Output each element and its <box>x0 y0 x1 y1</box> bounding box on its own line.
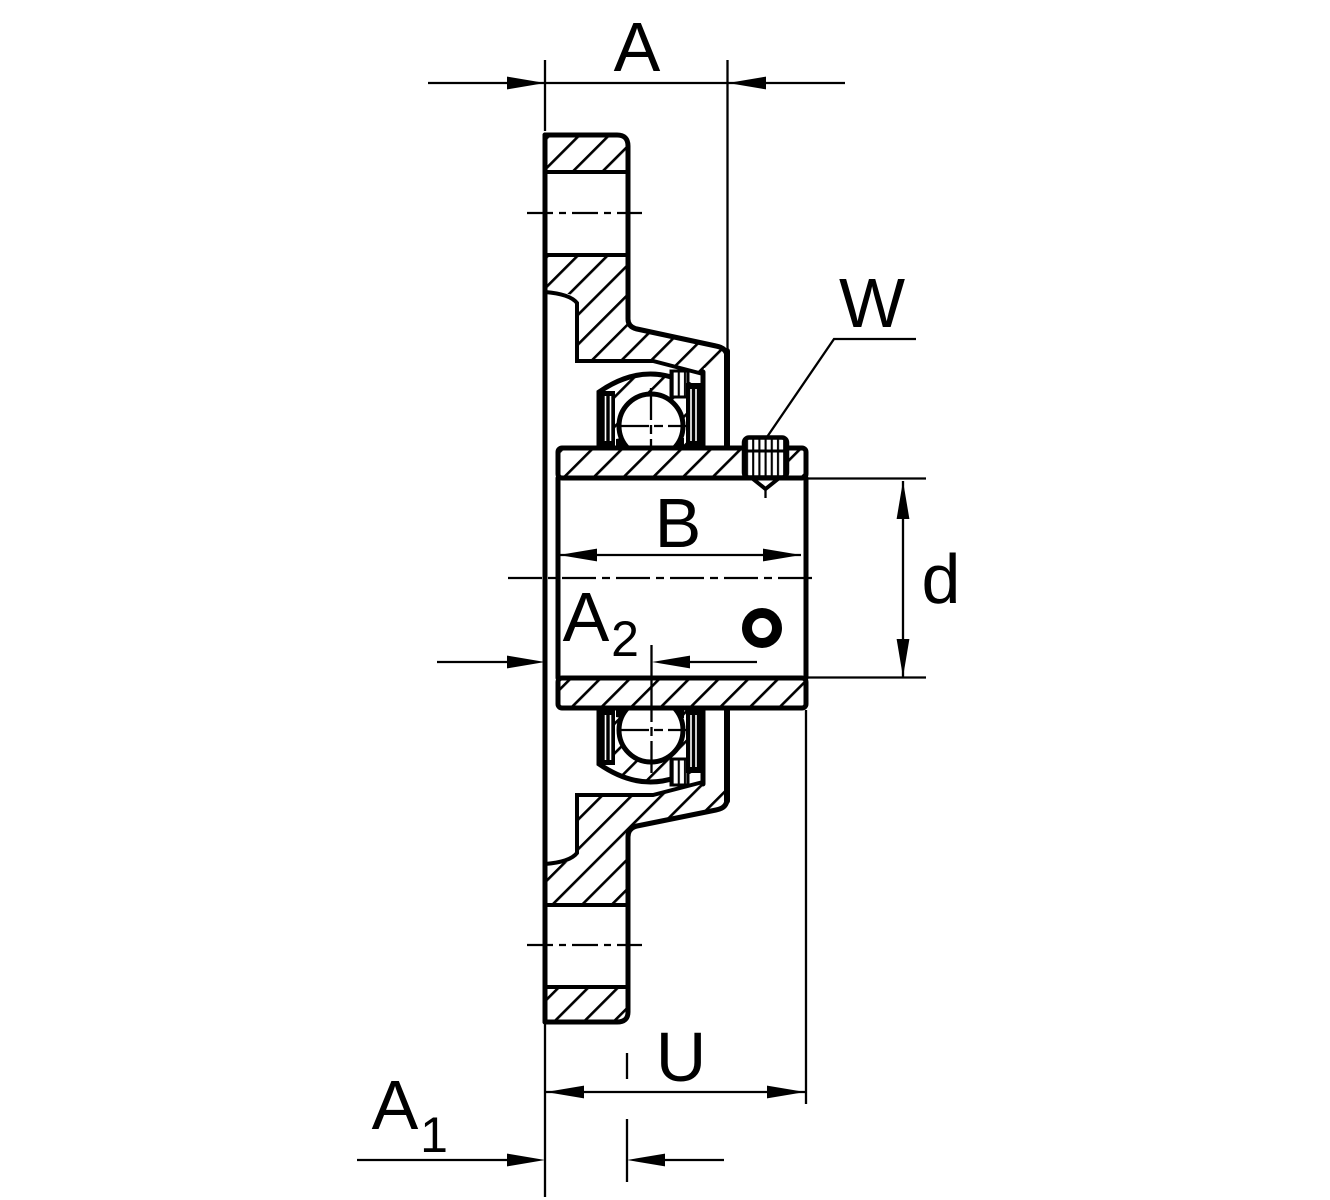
seal-left-bottom <box>601 709 616 765</box>
seal-left-top <box>601 391 616 447</box>
flange-top-hatch <box>545 135 628 172</box>
inner-ring-slinger-top <box>671 371 688 397</box>
arrowhead <box>652 656 690 669</box>
dim-label-A1: A <box>372 1066 419 1144</box>
flange-bottom-hatch <box>545 987 628 1022</box>
arrowhead <box>763 549 801 562</box>
housing-body-bottom-hatch <box>545 782 727 905</box>
dimension-a: A <box>428 8 845 350</box>
seal-right-top <box>686 383 701 447</box>
sleeve-band-bottom <box>558 678 806 708</box>
dim-label-W: W <box>839 264 905 342</box>
leader-line <box>767 339 916 437</box>
arrowhead <box>767 1086 805 1099</box>
arrowhead <box>559 549 597 562</box>
arrowhead <box>507 77 545 90</box>
inner-ring-slinger-bottom <box>671 759 688 785</box>
arrowhead <box>507 656 545 669</box>
set-screw-body <box>744 438 787 478</box>
dim-label-A: A <box>614 8 661 86</box>
arrowhead <box>897 639 910 677</box>
arrowhead <box>627 1154 665 1167</box>
dimension-d: d <box>808 479 960 678</box>
dim-label-B: B <box>655 484 702 562</box>
bearing-bottom <box>599 698 701 785</box>
technical-drawing-page: A W B d A 2 U <box>0 0 1330 1200</box>
dim-label-d: d <box>922 540 961 618</box>
centerlines <box>508 213 818 945</box>
set-screw <box>744 438 787 499</box>
arrowhead <box>507 1154 545 1167</box>
dimension-a2: A 2 <box>437 578 757 668</box>
dim-label-A1-sub: 1 <box>420 1107 448 1163</box>
flanged-bearing-unit-section-drawing: A W B d A 2 U <box>0 0 1330 1200</box>
dim-label-U: U <box>656 1018 707 1096</box>
arrowhead <box>728 77 766 90</box>
dim-label-A2: A <box>563 578 610 656</box>
grease-hole <box>747 613 777 643</box>
dim-label-A2-sub: 2 <box>611 611 639 667</box>
arrowhead <box>897 481 910 519</box>
arrowhead <box>546 1086 584 1099</box>
seal-right-bottom <box>686 709 701 773</box>
housing-body-top-hatch <box>545 255 727 374</box>
dimension-w: W <box>767 264 916 437</box>
